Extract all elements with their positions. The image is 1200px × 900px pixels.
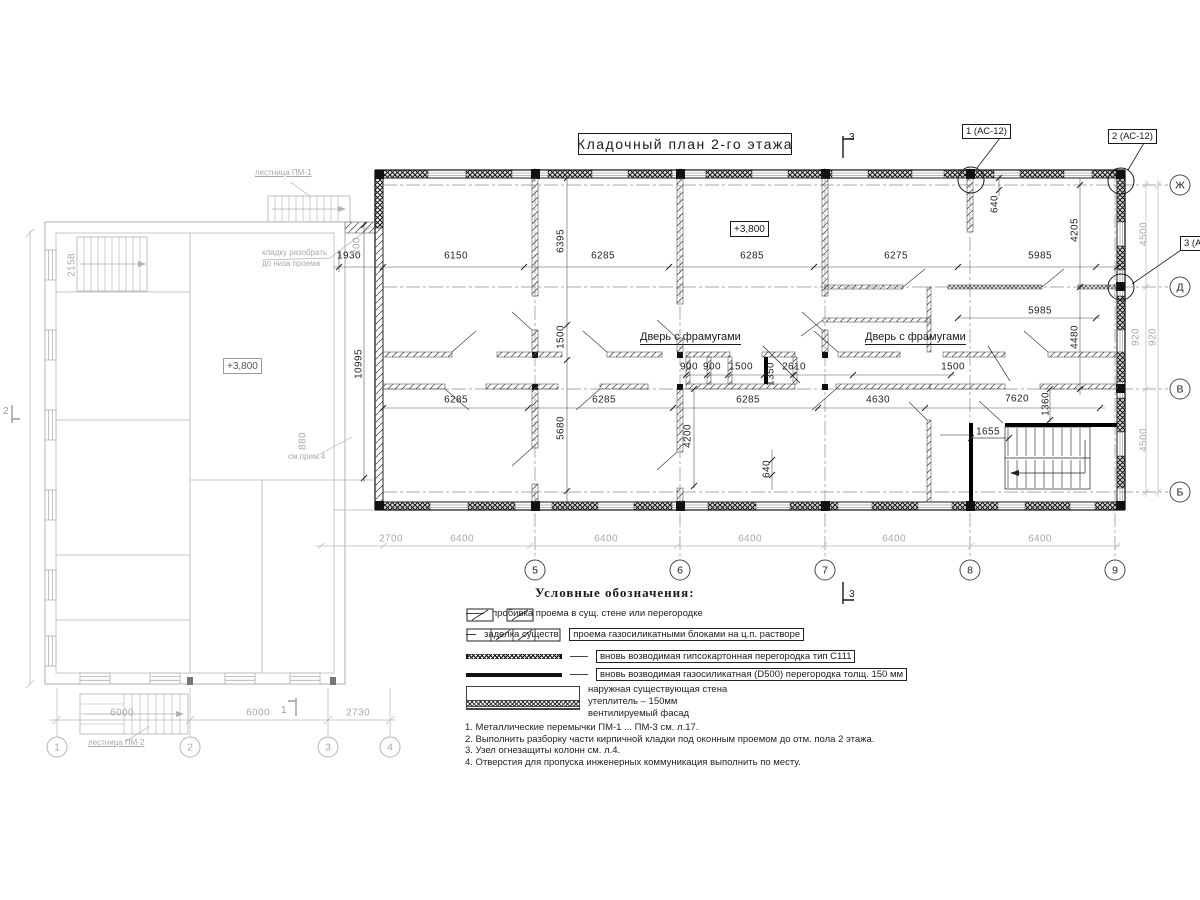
dimension-label: 4200 [683, 424, 694, 448]
dimension-label: 5680 [556, 416, 567, 440]
d500-partition-symbol-icon [466, 673, 562, 677]
dimension-label: 6400 [594, 534, 618, 545]
axis-bubble-8: 8 [960, 560, 981, 581]
legend-item-3: вновь возводимая гипсокартонная перегоро… [596, 650, 855, 663]
stair-label-pm1: лестница ПМ-1 [255, 168, 311, 177]
dimension-label: 1360 [1041, 392, 1052, 416]
dimension-label: 4480 [1070, 325, 1081, 349]
exterior-wall-symbol-icon [466, 686, 580, 710]
legend-item-2-boxed: проема газосиликатными блоками на ц.п. р… [569, 628, 804, 641]
dimension-label: 7620 [1005, 394, 1029, 405]
dimension-label: 1350 [766, 362, 777, 386]
dimension-label: 900 [680, 362, 698, 373]
axis-bubble-5: 5 [525, 560, 546, 581]
dimension-label: 2158 [67, 253, 78, 277]
drawing-title: Кладочный план 2-го этажа [578, 133, 792, 155]
legend-row-d500: вновь возводимая газосиликатная (D500) п… [466, 668, 907, 681]
main-staircase [940, 427, 1090, 489]
dimension-label: 6285 [736, 395, 760, 406]
axis-bubble-В: В [1170, 379, 1191, 400]
axis-bubble-Ж: Ж [1170, 175, 1191, 196]
legend-dash [570, 656, 588, 657]
callout-2: 2 (АС-12) [1108, 129, 1157, 144]
gypsum-partition-symbol-icon [466, 654, 562, 659]
dimension-label: 2700 [379, 534, 403, 545]
axis-bubble-6: 6 [670, 560, 691, 581]
door-label-1: Дверь с фрамугами [640, 331, 741, 345]
axis-bubble-Д: Д [1170, 277, 1191, 298]
demolish-note-line2: до низа проема [262, 259, 320, 268]
note-4: 4. Отверстия для пропуска инженерных ком… [465, 757, 874, 769]
dimension-label: 1500 [941, 362, 965, 373]
dimension-label: 1655 [976, 427, 1000, 438]
dimension-label: 640 [762, 460, 773, 478]
axis-bubble-1: 1 [47, 737, 68, 758]
dimension-label: 900 [703, 362, 721, 373]
section-mark-left-building: 1 [281, 705, 287, 716]
note-3: 3. Узел огнезащиты колонн см. л.4. [465, 745, 874, 757]
dimension-label: 2730 [346, 708, 370, 719]
dimension-label: 4630 [866, 395, 890, 406]
section-mark-far-left: 2 [3, 406, 9, 417]
see-note: см.прим.4 [288, 452, 325, 461]
dimension-label: 4205 [1070, 218, 1081, 242]
dimension-label: 6285 [591, 251, 615, 262]
legend-row-probivka: пробивка проема в сущ. стене или перегор… [466, 608, 703, 619]
note-2: 2. Выполнить разборку части кирпичной кл… [465, 734, 874, 746]
dimension-label: 920 [1131, 328, 1142, 346]
dimension-label: 6285 [592, 395, 616, 406]
axis-bubble-2: 2 [180, 737, 201, 758]
dimension-label: 880 [298, 432, 309, 450]
axis-bubble-Б: Б [1170, 482, 1191, 503]
dimension-label: 4500 [1139, 428, 1150, 452]
note-1: 1. Металлические перемычки ПМ-1 ... ПМ-3… [465, 722, 874, 734]
axis-bubble-7: 7 [815, 560, 836, 581]
stair-label-pm2: лестница ПМ-2 [88, 738, 144, 747]
section-mark-bottom: 3 [849, 589, 855, 600]
callout-3: 3 (АС-12) [1180, 236, 1200, 251]
dimension-label: 6400 [738, 534, 762, 545]
dimension-label: 200 [352, 237, 363, 255]
legend-row-wall: наружная существующая стена утеплитель –… [466, 686, 727, 719]
dimension-label: 4500 [1139, 222, 1150, 246]
legend-item-5b: утеплитель – 150мм [588, 696, 727, 707]
axis-bubble-9: 9 [1105, 560, 1126, 581]
legend-item-4: вновь возводимая газосиликатная (D500) п… [596, 668, 907, 681]
dimension-label: 10995 [354, 349, 365, 379]
dimension-label: 6400 [1028, 534, 1052, 545]
new-d500-walls [764, 357, 1117, 502]
callout-1: 1 (АС-12) [962, 124, 1011, 139]
dimension-label: 6000 [246, 708, 270, 719]
legend-item-5a: наружная существующая стена [588, 684, 727, 695]
legend-title: Условные обозначения: [535, 585, 695, 601]
dimension-label: 6150 [444, 251, 468, 262]
legend-row-gypsum: вновь возводимая гипсокартонная перегоро… [466, 650, 855, 663]
legend-row-zadelka: заделка существ. проема газосиликатными … [466, 628, 804, 641]
dimension-label: 6285 [444, 395, 468, 406]
dimension-label: 1500 [729, 362, 753, 373]
axis-bubble-3: 3 [318, 737, 339, 758]
dimension-label: 6285 [740, 251, 764, 262]
drawing-sheet: Кладочный план 2-го этажа +3,800 +3,800 … [0, 0, 1200, 900]
elevation-mark-main: +3,800 [730, 221, 769, 237]
dimension-label: 6275 [884, 251, 908, 262]
dimension-label: 5985 [1028, 251, 1052, 262]
dimension-label: 640 [990, 195, 1001, 213]
dimension-label: 6400 [882, 534, 906, 545]
dimension-label: 920 [1148, 328, 1159, 346]
demolish-note-line1: кладку разобрать [262, 248, 327, 257]
infill-blocks-symbol-icon [466, 628, 562, 642]
axis-bubble-4: 4 [380, 737, 401, 758]
dimension-label: 6395 [556, 229, 567, 253]
legend-item-5c: вентилируемый фасад [588, 708, 727, 719]
dimension-label: 5985 [1028, 306, 1052, 317]
opening-punch-symbol-icon [466, 608, 534, 622]
dimension-label: 6400 [450, 534, 474, 545]
dimension-label: 1500 [556, 325, 567, 349]
dimension-label: 6000 [110, 708, 134, 719]
notes-block: 1. Металлические перемычки ПМ-1 ... ПМ-3… [465, 722, 874, 768]
section-mark-top: 3 [849, 132, 855, 143]
dimension-label: 2610 [782, 362, 806, 373]
elevation-mark-left: +3,800 [223, 358, 262, 374]
legend-dash [570, 674, 588, 675]
door-label-2: Дверь с фрамугами [865, 331, 966, 345]
